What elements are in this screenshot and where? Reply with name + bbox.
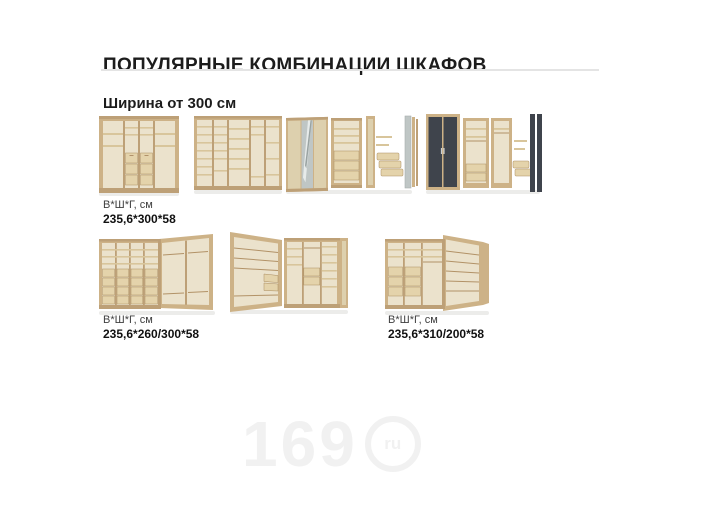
dims-caption: В*Ш*Г, см (103, 314, 199, 327)
product-combo-5[interactable] (97, 231, 218, 317)
dims-caption: В*Ш*Г, см (388, 314, 484, 327)
wardrobe-mirror-door-image (284, 106, 419, 198)
wardrobe-dark-door-image (424, 106, 545, 198)
product-combo-4[interactable] (424, 106, 545, 198)
corner-wardrobe-right-shelves-image (383, 231, 493, 317)
watermark-domain-icon: ru (365, 416, 421, 472)
product-combo-1[interactable] (97, 112, 181, 200)
product-combo-2[interactable] (192, 110, 284, 198)
watermark-number: 169 (242, 414, 358, 474)
product-combo-6[interactable] (228, 228, 352, 316)
dims-value: 235,6*260/300*58 (103, 327, 199, 342)
wardrobe-straight-drawers-image (97, 112, 181, 200)
dims-label-row2-left: В*Ш*Г, см 235,6*260/300*58 (103, 314, 199, 342)
dims-label-row2-right: В*Ш*Г, см 235,6*310/200*58 (388, 314, 484, 342)
watermark-domain: ru (384, 434, 401, 454)
page-title: ПОПУЛЯРНЫЕ КОМБИНАЦИИ ШКАФОВ (103, 55, 487, 77)
wardrobe-open-shelving-image (192, 110, 284, 198)
dims-label-row1: В*Ш*Г, см 235,6*300*58 (103, 199, 176, 227)
corner-wardrobe-center-image (228, 228, 352, 316)
title-divider (101, 69, 599, 71)
catalog-page: ПОПУЛЯРНЫЕ КОМБИНАЦИИ ШКАФОВ Ширина от 3… (0, 0, 702, 523)
dims-caption: В*Ш*Г, см (103, 199, 176, 212)
dims-value: 235,6*300*58 (103, 212, 176, 227)
product-combo-3[interactable] (284, 106, 419, 198)
corner-wardrobe-left-drawers-image (97, 231, 218, 317)
site-watermark: 169 ru (242, 414, 421, 474)
product-combo-7[interactable] (383, 231, 493, 317)
dims-value: 235,6*310/200*58 (388, 327, 484, 342)
